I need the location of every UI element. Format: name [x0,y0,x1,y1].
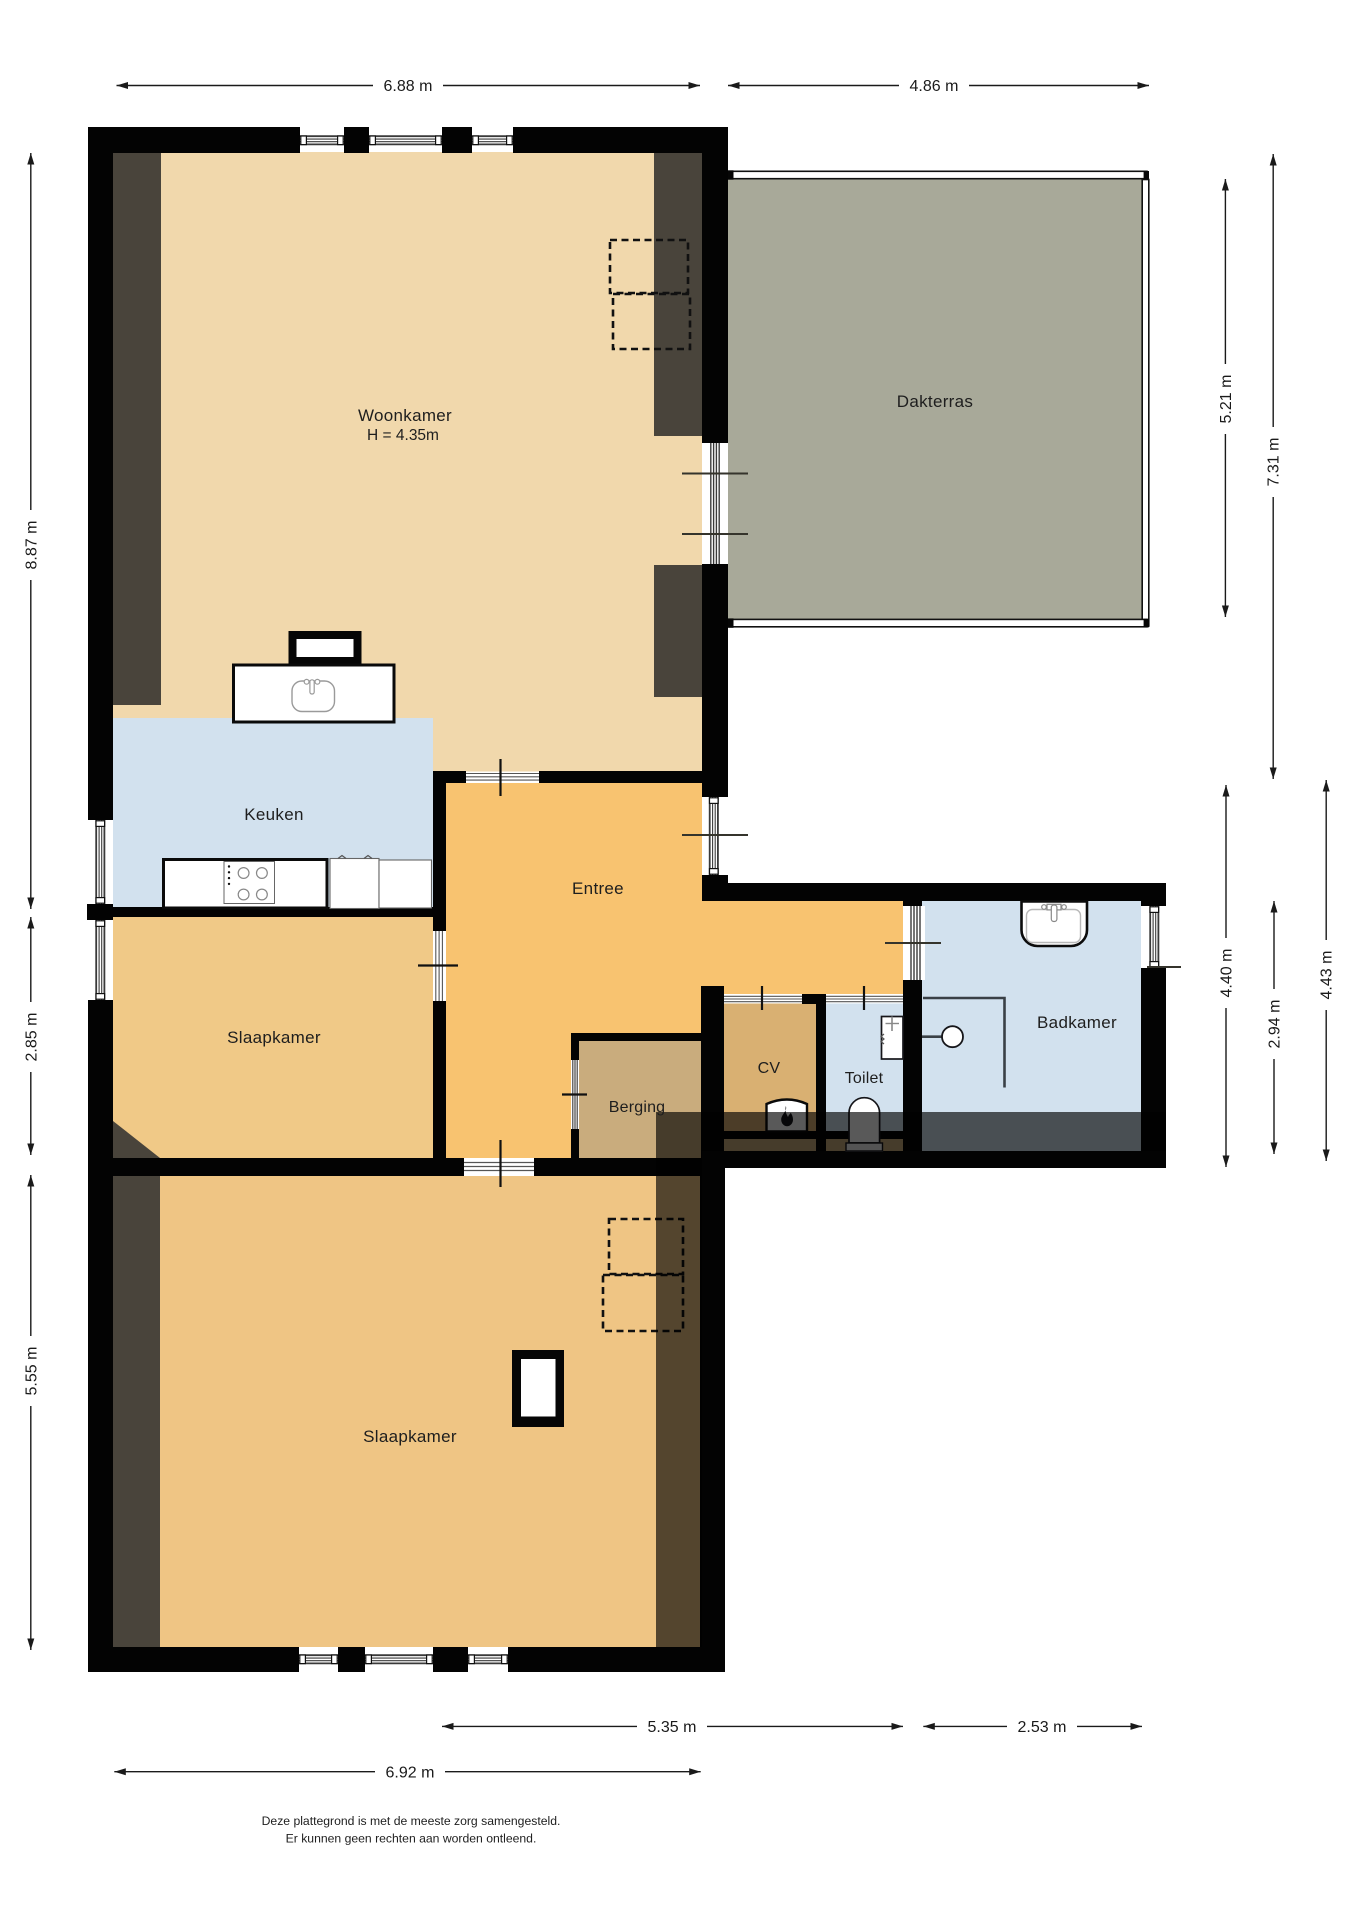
svg-text:6.92 m: 6.92 m [386,1764,435,1781]
svg-text:2.85 m: 2.85 m [23,1013,40,1062]
svg-text:Woonkamer: Woonkamer [358,406,452,425]
svg-text:4.40 m: 4.40 m [1219,949,1236,998]
svg-text:8.87 m: 8.87 m [23,521,40,570]
svg-text:4.43 m: 4.43 m [1319,951,1336,1000]
svg-text:Toilet: Toilet [845,1070,884,1087]
svg-text:CV: CV [758,1060,781,1077]
svg-text:4.86 m: 4.86 m [910,78,959,95]
svg-text:Slaapkamer: Slaapkamer [363,1427,457,1446]
svg-text:H = 4.35m: H = 4.35m [367,427,439,444]
svg-text:Berging: Berging [609,1099,666,1116]
svg-text:Keuken: Keuken [244,805,303,824]
svg-text:7.31 m: 7.31 m [1266,438,1283,487]
svg-text:5.55 m: 5.55 m [23,1347,40,1396]
svg-text:Slaapkamer: Slaapkamer [227,1028,321,1047]
svg-text:5.21 m: 5.21 m [1218,375,1235,424]
svg-text:Deze plattegrond is met de mee: Deze plattegrond is met de meeste zorg s… [262,1814,561,1828]
svg-text:2.94 m: 2.94 m [1267,1000,1284,1049]
svg-text:6.88 m: 6.88 m [384,78,433,95]
svg-text:Er kunnen geen rechten aan wor: Er kunnen geen rechten aan worden ontlee… [286,1832,537,1846]
svg-text:Badkamer: Badkamer [1037,1013,1117,1032]
svg-text:2.53 m: 2.53 m [1018,1719,1067,1736]
svg-text:Entree: Entree [572,879,624,898]
svg-text:Dakterras: Dakterras [897,392,973,411]
svg-text:5.35 m: 5.35 m [648,1719,697,1736]
